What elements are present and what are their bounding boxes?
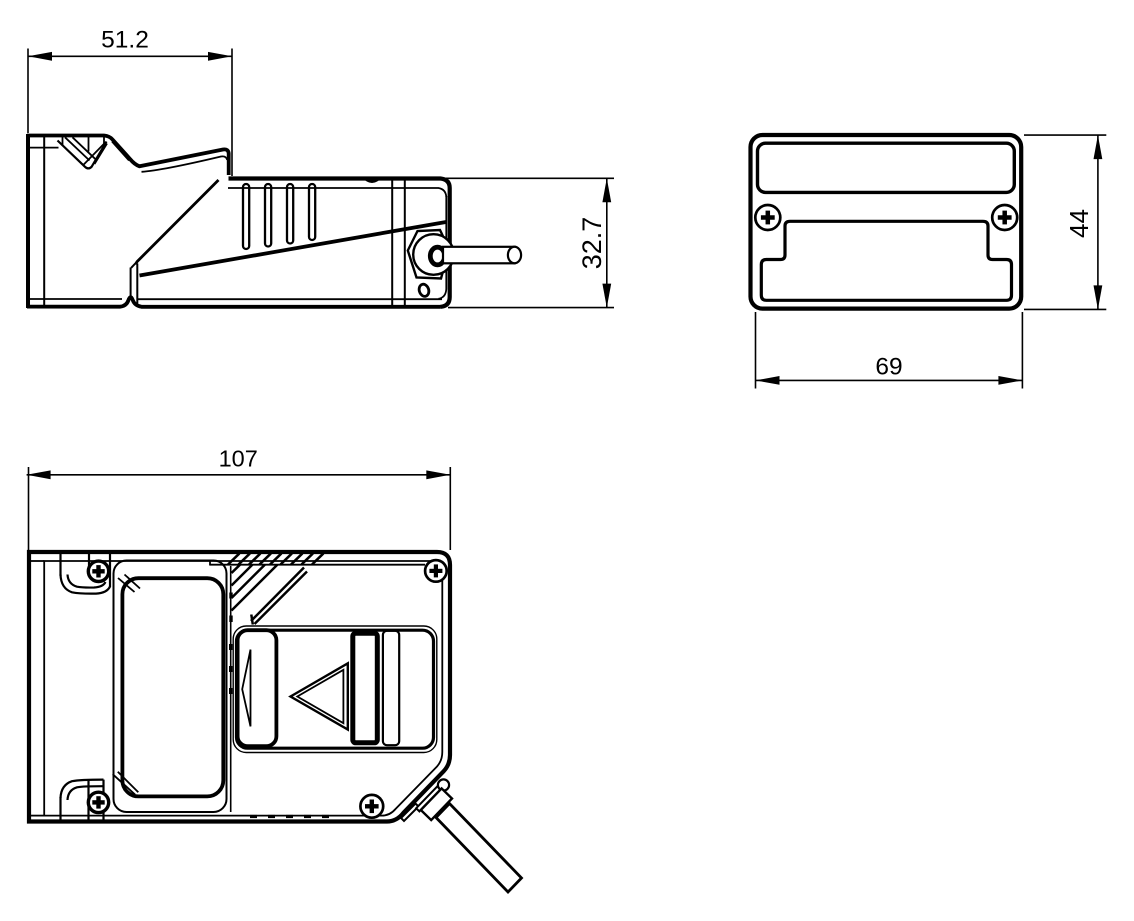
svg-text:69: 69	[875, 354, 902, 381]
svg-text:51.2: 51.2	[101, 27, 149, 54]
svg-text:32.7: 32.7	[577, 217, 607, 270]
svg-text:107: 107	[219, 446, 258, 472]
svg-text:44: 44	[1064, 209, 1094, 238]
